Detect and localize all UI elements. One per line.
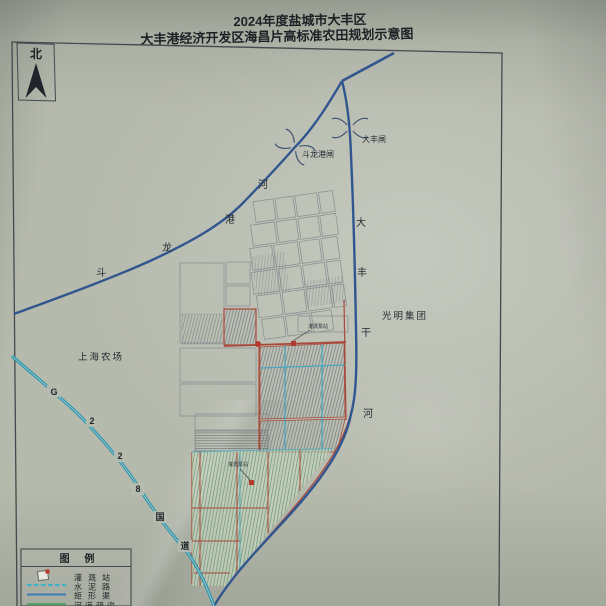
- irrigation-station-icon-dot: [46, 570, 50, 574]
- river-inflow-line: [342, 53, 394, 81]
- river-label-char: 斗: [96, 267, 106, 279]
- pump-station-label: 灌溉泵站: [228, 461, 248, 468]
- legend-row-label: 河道疏浚: [74, 601, 118, 606]
- striped-block: [195, 431, 268, 451]
- photographed-map-sheet: 2024年度盐城市大丰区 大丰港经济开发区海昌片高标准农田规划示意图 北: [0, 0, 606, 606]
- annotation-leader-line: [293, 330, 310, 341]
- road-labels: G 2 2 8 国 道: [50, 387, 189, 551]
- river-label-char: 河: [363, 408, 373, 420]
- river-label-char: 干: [361, 328, 371, 339]
- field-plots-south-green: [192, 449, 332, 586]
- river-label-char: 丰: [357, 266, 367, 279]
- legend-row-label: 水泥路: [74, 582, 116, 592]
- pump-station-marker: [291, 341, 296, 346]
- map-canvas: 2024年度盐城市大丰区 大丰港经济开发区海昌片高标准农田规划示意图 北: [0, 0, 606, 606]
- river-label-char: 大: [356, 216, 366, 229]
- hatched-block-a: [224, 309, 256, 345]
- pump-station-label: 灌溉泵站: [308, 323, 328, 330]
- road-label-char: 8: [135, 484, 140, 494]
- north-arrow-icon: [26, 63, 47, 98]
- legend-row-label: 灌溉站: [74, 573, 116, 583]
- river-label-char: 港: [225, 214, 235, 226]
- road-label-halos: [47, 385, 192, 552]
- north-label: 北: [30, 46, 42, 61]
- river-label-char: 河: [258, 179, 268, 191]
- gate-label-dafeng: 大丰闸: [362, 134, 386, 144]
- hatched-block-b: [260, 343, 345, 419]
- area-label-guangming-group: 光明集团: [382, 310, 428, 322]
- pump-station-marker: [255, 341, 261, 347]
- gate-label-doulonggang: 斗龙港闸: [302, 149, 334, 159]
- road-label-char: G: [50, 387, 57, 397]
- legend-row-label: 矩形渠: [74, 591, 116, 601]
- legend: 图 例 灌溉站 水泥路 矩形渠 河道疏浚: [21, 549, 131, 606]
- road-label-char: 2: [89, 416, 94, 426]
- map-title-line2: 大丰港经济开发区海昌片高标准农田规划示意图: [140, 26, 413, 47]
- legend-title: 图 例: [60, 552, 101, 565]
- road-label-char: 国: [155, 512, 164, 522]
- area-label-shanghai-farm: 上海农场: [78, 351, 124, 363]
- road-label-char: 2: [117, 451, 122, 461]
- pump-station-marker: [249, 480, 254, 485]
- north-arrow: 北: [17, 43, 56, 101]
- road-label-char: 道: [180, 540, 189, 551]
- river-label-char: 龙: [162, 241, 172, 254]
- hatched-block-c: [260, 419, 345, 452]
